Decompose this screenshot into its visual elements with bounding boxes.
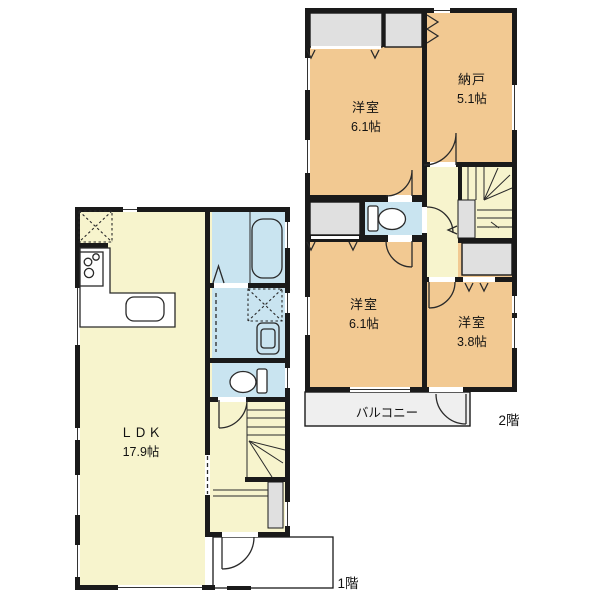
stair-void bbox=[458, 200, 475, 238]
room-bathroom bbox=[212, 212, 285, 283]
wall bbox=[458, 238, 517, 243]
door-opening bbox=[422, 207, 427, 233]
porch-step bbox=[227, 586, 251, 590]
closet-track bbox=[311, 46, 381, 49]
closet-top-left bbox=[310, 13, 382, 47]
wall bbox=[78, 243, 108, 248]
closet-nando bbox=[385, 13, 422, 47]
ldk-label: ＬＤＫ bbox=[120, 425, 162, 440]
door-opening bbox=[218, 397, 246, 402]
closet-understair bbox=[462, 243, 512, 275]
bedroom-small-label: 洋室 bbox=[458, 315, 486, 330]
floor-plan-svg: ＬＤＫ 17.9帖 1階 bbox=[0, 0, 600, 599]
closet-track bbox=[311, 236, 359, 239]
open-wall bbox=[205, 455, 210, 495]
shoe-cabinet bbox=[268, 482, 283, 528]
wall bbox=[245, 477, 290, 482]
balcony-label: バルコニー bbox=[356, 406, 418, 420]
toilet-icon-2f bbox=[368, 206, 406, 231]
nando-size: 5.1帖 bbox=[457, 91, 487, 106]
wall bbox=[305, 387, 517, 392]
wall bbox=[360, 202, 365, 235]
wall bbox=[205, 358, 290, 363]
floor1-tag: 1階 bbox=[337, 576, 358, 591]
closet-middle bbox=[310, 202, 360, 235]
bedroom-bottom-size: 6.1帖 bbox=[349, 316, 379, 331]
door-opening bbox=[388, 235, 412, 242]
door-opening bbox=[214, 283, 248, 288]
door-opening bbox=[429, 277, 455, 282]
floor2-tag: 2階 bbox=[498, 413, 519, 428]
door-opening bbox=[430, 162, 456, 167]
wall bbox=[75, 207, 290, 212]
wall bbox=[305, 8, 517, 13]
bedroom-small-size: 3.8帖 bbox=[457, 334, 487, 349]
floor-plan-canvas: ＬＤＫ 17.9帖 1階 bbox=[0, 0, 600, 599]
hall-2f bbox=[427, 167, 458, 279]
kitchen-sink-icon bbox=[126, 297, 164, 321]
bedroom-top-label: 洋室 bbox=[352, 100, 380, 115]
stove-icon bbox=[80, 252, 103, 286]
ldk-size-label: 17.9帖 bbox=[123, 444, 160, 459]
wall bbox=[382, 13, 385, 47]
door-opening bbox=[429, 387, 463, 392]
door-opening bbox=[222, 532, 258, 537]
nando-label: 納戸 bbox=[458, 72, 486, 87]
door-opening bbox=[463, 277, 495, 282]
bedroom-bottom-label: 洋室 bbox=[350, 297, 378, 312]
wall bbox=[75, 207, 80, 590]
wall bbox=[458, 167, 462, 200]
floor-2: 洋室 6.1帖 納戸 5.1帖 洋室 6.1帖 洋室 3.8帖 バルコニー 2階 bbox=[305, 8, 520, 428]
bedroom-top-size: 6.1帖 bbox=[351, 119, 381, 134]
entrance-porch bbox=[213, 537, 333, 588]
